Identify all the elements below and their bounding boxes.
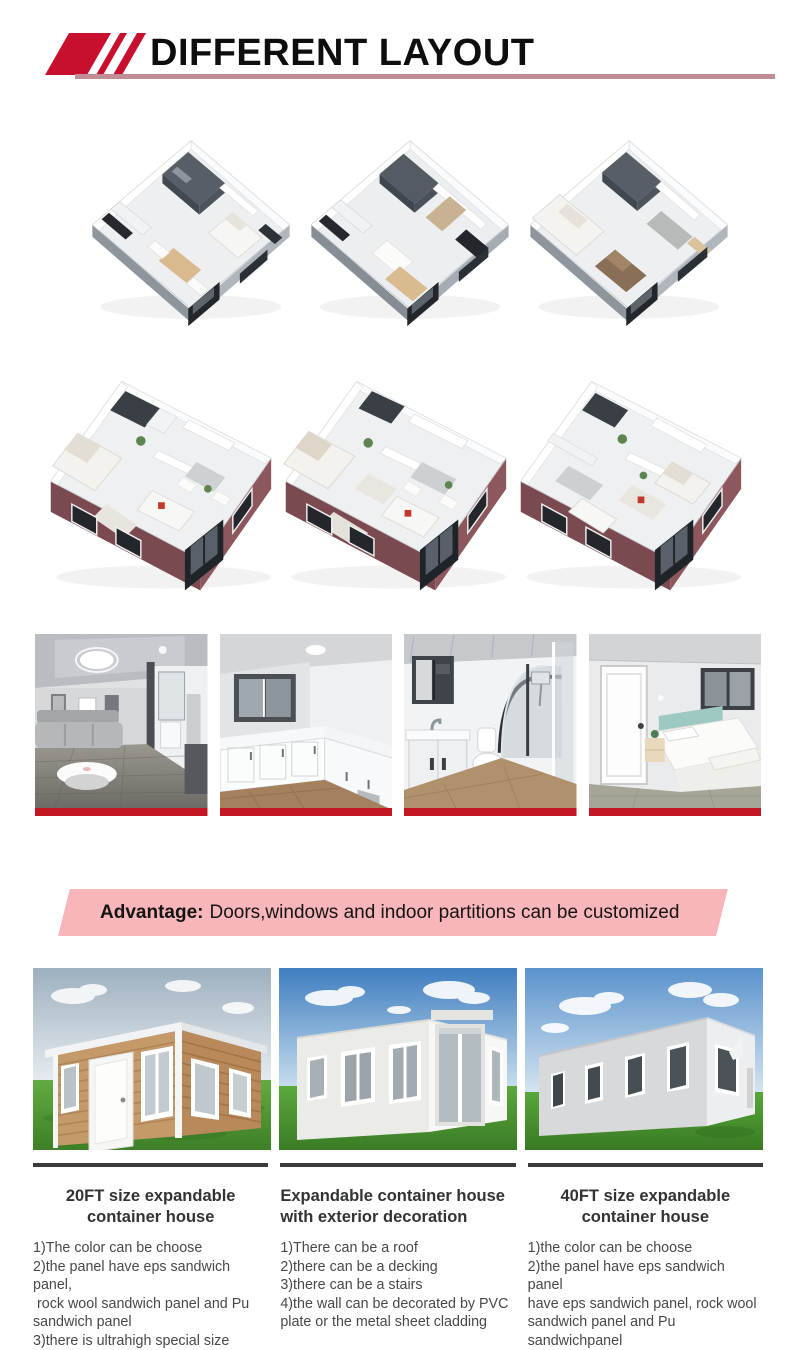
feature-line: have eps sandwich panel, rock wool <box>528 1295 763 1314</box>
floorplan-6-svg <box>515 370 745 596</box>
product-text-columns: 20FT size expandable container house 1)T… <box>33 1180 763 1350</box>
bathroom-photo <box>404 634 577 816</box>
floorplan-5-svg <box>280 370 510 596</box>
floorplan-1-svg <box>85 128 297 329</box>
floorplan-image-2 <box>304 128 516 329</box>
feature-line: 3)there is ultrahigh special size <box>33 1332 268 1350</box>
feature-line: 2)there can be a decking <box>280 1258 515 1277</box>
product-column-decorated: Expandable container house with exterior… <box>280 1180 515 1350</box>
wooden-house-photo <box>33 968 271 1150</box>
living-room-svg <box>35 634 208 816</box>
product-title: 40FT size expandable container house <box>528 1186 763 1228</box>
bedroom-svg <box>589 634 762 816</box>
brand-slash-icon <box>45 32 150 76</box>
living-room-photo <box>35 634 208 816</box>
product-detail-page: DIFFERENT LAYOUT <box>0 0 790 1350</box>
interior-photos-row <box>35 634 761 816</box>
section-header: DIFFERENT LAYOUT <box>45 30 775 80</box>
floorplan-image-1 <box>85 128 297 329</box>
feature-line: 1)The color can be choose <box>33 1239 268 1258</box>
floorplan-4-svg <box>45 370 275 596</box>
divider-3 <box>528 1163 763 1167</box>
feature-line: 2)the panel have eps sandwich panel, <box>33 1258 268 1295</box>
kitchen-photo <box>220 634 393 816</box>
advantage-label: Advantage: <box>100 902 203 923</box>
floorplans-row-1 <box>85 128 735 329</box>
kitchen-svg <box>220 634 393 816</box>
white-house-photo <box>279 968 517 1150</box>
long-house-photo <box>525 968 763 1150</box>
advantage-text: Advantage:Doors,windows and indoor parti… <box>64 889 722 936</box>
floorplan-2-svg <box>304 128 516 329</box>
floorplan-image-3 <box>523 128 735 329</box>
advantage-banner: Advantage:Doors,windows and indoor parti… <box>58 889 728 936</box>
product-title: Expandable container house with exterior… <box>280 1186 515 1228</box>
bathroom-svg <box>404 634 577 816</box>
feature-line: sandwich panel <box>33 1313 268 1332</box>
floorplan-image-6 <box>515 370 745 596</box>
white-house-svg <box>279 968 517 1150</box>
floorplans-row-2 <box>45 370 745 596</box>
divider-1 <box>33 1163 268 1167</box>
product-column-20ft: 20FT size expandable container house 1)T… <box>33 1180 268 1350</box>
feature-line: 4)the wall can be decorated by PVC <box>280 1295 515 1314</box>
floorplan-3-svg <box>523 128 735 329</box>
divider-row <box>33 1163 763 1167</box>
feature-line: rock wool sandwich panel and Pu <box>33 1295 268 1314</box>
house-photos-row <box>33 968 763 1150</box>
floorplan-image-5 <box>280 370 510 596</box>
product-column-40ft: 40FT size expandable container house 1)t… <box>528 1180 763 1350</box>
feature-line: sandwich panel and Pu sandwichpanel <box>528 1313 763 1350</box>
wooden-house-svg <box>33 968 271 1150</box>
feature-line: 2)the panel have eps sandwich panel <box>528 1258 763 1295</box>
long-house-svg <box>525 968 763 1150</box>
section-title: DIFFERENT LAYOUT <box>150 30 535 76</box>
feature-line: 3)there can be a stairs <box>280 1276 515 1295</box>
feature-line: 1)There can be a roof <box>280 1239 515 1258</box>
feature-line: plate or the metal sheet cladding <box>280 1313 515 1332</box>
feature-line: 1)the color can be choose <box>528 1239 763 1258</box>
bedroom-photo <box>589 634 762 816</box>
floorplan-image-4 <box>45 370 275 596</box>
product-title: 20FT size expandable container house <box>33 1186 268 1228</box>
divider-2 <box>280 1163 515 1167</box>
